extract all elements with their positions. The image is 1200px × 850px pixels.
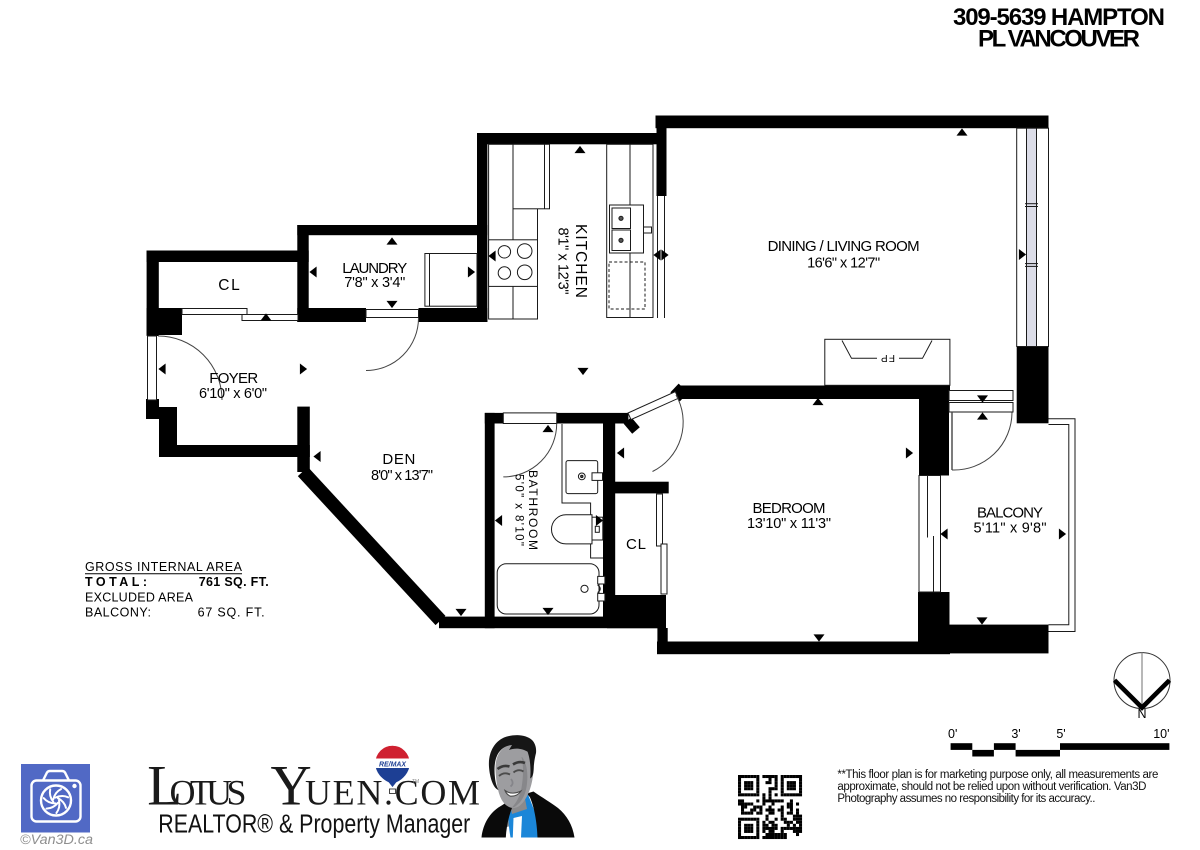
svg-text:BATHROOM: BATHROOM	[526, 470, 540, 550]
svg-text:BALCONY:: BALCONY:	[85, 606, 151, 620]
svg-text:5': 5'	[1056, 727, 1065, 741]
svg-text:16'6" x 12'7": 16'6" x 12'7"	[807, 256, 880, 272]
svg-text:KITCHEN: KITCHEN	[572, 224, 589, 298]
svg-text:PL VANCOUVER: PL VANCOUVER	[978, 26, 1140, 53]
svg-text:8'0" x 13'7": 8'0" x 13'7"	[371, 468, 433, 484]
svg-text:©Van3D.ca: ©Van3D.ca	[20, 832, 94, 847]
svg-text:CL: CL	[626, 536, 646, 553]
svg-text:DINING / LIVING ROOM: DINING / LIVING ROOM	[768, 238, 920, 255]
svg-text:FOYER: FOYER	[209, 370, 258, 387]
svg-text:13'10" x 11'3": 13'10" x 11'3"	[747, 516, 831, 532]
svg-text:10': 10'	[1153, 727, 1169, 741]
svg-text:0': 0'	[948, 727, 957, 741]
svg-text:RE/MAX: RE/MAX	[379, 762, 407, 769]
svg-text:REALTOR® & Property Manager: REALTOR® & Property Manager	[158, 809, 470, 839]
svg-text:GROSS INTERNAL AREA: GROSS INTERNAL AREA	[85, 560, 243, 574]
svg-text:**This floor plan is for marke: **This floor plan is for marketing purpo…	[837, 769, 1158, 781]
svg-text:3': 3'	[1011, 727, 1020, 741]
svg-text:DEN: DEN	[382, 451, 415, 468]
svg-text:7'8" x 3'4": 7'8" x 3'4"	[344, 275, 405, 291]
svg-text:EXCLUDED AREA: EXCLUDED AREA	[85, 590, 194, 604]
svg-text:5'0" x 8'10": 5'0" x 8'10"	[513, 474, 525, 546]
svg-text:8'1" x 12'3": 8'1" x 12'3"	[555, 228, 571, 295]
svg-text:5'11" x 9'8": 5'11" x 9'8"	[974, 521, 1047, 537]
svg-text:N: N	[1137, 707, 1146, 721]
svg-text:761 SQ. FT.: 761 SQ. FT.	[199, 575, 269, 589]
svg-text:BALCONY: BALCONY	[977, 505, 1043, 522]
svg-text:67 SQ. FT.: 67 SQ. FT.	[198, 606, 265, 620]
svg-text:BEDROOM: BEDROOM	[753, 500, 826, 517]
svg-text:FP: FP	[881, 352, 895, 363]
svg-text:approximate, should not be rel: approximate, should not be relied upon w…	[837, 781, 1146, 793]
svg-text:OTUS: OTUS	[170, 773, 247, 813]
svg-text:Photography assumes no respons: Photography assumes no responsibility fo…	[837, 793, 1095, 805]
svg-text:6'10" x 6'0": 6'10" x 6'0"	[199, 386, 267, 402]
svg-text:TM: TM	[412, 779, 419, 785]
svg-text:CL: CL	[218, 277, 240, 294]
